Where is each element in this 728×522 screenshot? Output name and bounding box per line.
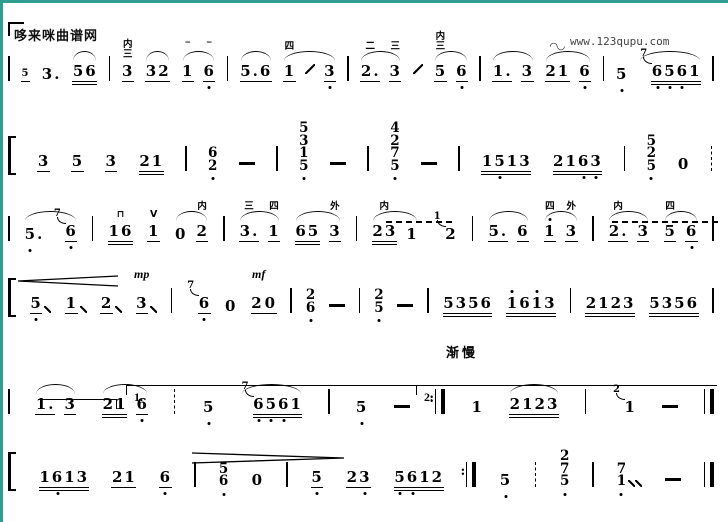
note: ‾6	[203, 63, 215, 82]
note-digits: 3	[565, 223, 577, 242]
slur	[435, 51, 467, 61]
slide-mark	[413, 64, 423, 74]
digit: .	[37, 226, 44, 242]
digit: 3	[324, 63, 336, 79]
barline	[603, 56, 605, 81]
note-digits: 3	[324, 63, 336, 82]
slur-group: 2123	[509, 396, 559, 415]
note: ⊓16	[108, 223, 133, 242]
digit: 2	[111, 469, 123, 485]
annotation-mark: 三	[244, 202, 254, 212]
note: 5	[30, 295, 51, 314]
note-digits: 5	[202, 399, 214, 415]
sheet-music-page: 哆来咪曲谱网 www.123qupu.com 渐慢 53.56内三332‾1‾6…	[0, 0, 728, 522]
note-digits: 1	[471, 399, 483, 415]
music-line-accompaniment: 353216253154275151321635250	[8, 96, 714, 172]
annotation: 三	[391, 42, 401, 52]
digit: 5	[443, 295, 455, 311]
slur-group: 四56	[664, 223, 698, 242]
note: 5	[355, 399, 367, 415]
note-digits: 21	[111, 469, 136, 488]
chord-wrap: 71	[617, 463, 642, 488]
digit: 6	[577, 153, 589, 169]
note-digits: 5	[664, 223, 676, 242]
slash-icon	[115, 306, 122, 313]
digit: 1	[531, 295, 543, 311]
digit: 6	[259, 63, 271, 79]
note: 5	[202, 399, 214, 415]
digit: 3	[384, 223, 396, 239]
digit: 2	[372, 223, 384, 239]
note: ◠◡21	[545, 63, 570, 82]
note: 3	[136, 295, 157, 314]
note-digits: 2	[196, 223, 208, 242]
annotation: 外	[567, 202, 577, 212]
note: 2123	[585, 295, 635, 314]
note-digits: 5	[30, 295, 42, 314]
barline	[712, 288, 714, 313]
digit: 2	[545, 63, 557, 79]
digit: 1	[522, 396, 534, 412]
hairpin-lines	[192, 452, 344, 464]
note-digits: 0	[175, 226, 187, 242]
barline	[171, 288, 173, 313]
note-digits: 5.	[24, 226, 44, 242]
barline	[704, 462, 714, 487]
note: 76561	[651, 63, 701, 82]
note: 76	[65, 223, 77, 242]
note: 3.	[41, 66, 61, 82]
digit: 5	[71, 153, 83, 169]
chord: 26	[306, 289, 315, 314]
digit: 1	[689, 63, 701, 79]
digit: 2	[431, 469, 443, 485]
note-digits: 6	[517, 223, 529, 242]
digit: .	[373, 63, 380, 79]
note-digits: 6	[456, 63, 468, 82]
slur	[146, 51, 169, 61]
digit: 2	[158, 63, 170, 79]
note-digits: 23	[372, 223, 397, 242]
note: 1613	[506, 295, 556, 314]
note-digits: 1613	[506, 295, 556, 314]
annotation-mark: 四	[545, 202, 555, 212]
digit: 3	[637, 223, 649, 239]
digit: 1	[124, 469, 136, 485]
note-digits: 0	[677, 156, 689, 172]
note-digits: 1613	[39, 469, 89, 488]
digit: 6	[253, 396, 265, 412]
chord: 71	[617, 463, 626, 488]
digit: 5	[72, 63, 84, 79]
note-digits: 3	[637, 223, 649, 242]
note: 5.	[488, 223, 508, 242]
digit: .	[252, 223, 259, 239]
pluck-mark	[115, 306, 122, 314]
note-digits: 1	[147, 223, 159, 242]
volta-label: 2.	[424, 391, 433, 404]
slur-group: 1.3	[492, 63, 533, 82]
digit: 0	[175, 226, 187, 242]
digit: 6	[65, 223, 77, 239]
dash-rest	[421, 162, 437, 165]
slur	[665, 211, 697, 221]
chord-digit: 6	[219, 475, 228, 488]
note-digits: 2.	[360, 63, 380, 82]
note-digits: 0	[251, 472, 263, 488]
note: 内2	[196, 223, 208, 242]
digit: 2	[610, 295, 622, 311]
annotation-mark: ⊓	[117, 210, 125, 220]
note: 6	[159, 469, 171, 488]
note-digits: 5	[311, 469, 323, 488]
volta-bracket	[38, 399, 117, 409]
barline	[427, 288, 429, 313]
note: 四1	[283, 63, 295, 82]
digit: 5	[265, 396, 277, 412]
note-digits: 3	[122, 63, 134, 82]
barline	[712, 56, 714, 81]
annotation-mark: 二	[365, 42, 375, 52]
digit: 1	[151, 153, 163, 169]
digit: 5	[307, 223, 319, 239]
digit: 0	[264, 295, 276, 311]
digit: 3	[136, 295, 148, 311]
annotation: V	[150, 210, 157, 220]
note-digits: 5	[355, 399, 367, 415]
string-dashed-line	[386, 221, 452, 223]
slur-group: 三3.四1	[239, 223, 280, 242]
note: 2123	[509, 396, 559, 415]
digit: 1	[471, 399, 483, 415]
barline	[8, 452, 16, 491]
digit: 1	[268, 223, 280, 239]
note: 1	[406, 226, 418, 242]
digit: 1	[624, 399, 636, 415]
annotation-mark: 三	[391, 42, 401, 52]
note: 内23	[372, 223, 397, 242]
digit: 6	[480, 295, 492, 311]
tempo-mark: 渐慢	[446, 342, 478, 361]
digit: 2	[553, 153, 565, 169]
digit: 3	[329, 223, 341, 239]
annotation: ‾	[207, 42, 212, 52]
note-digits: 56	[72, 63, 97, 82]
dash-rest	[665, 478, 681, 481]
barline	[359, 288, 361, 313]
slash-icon	[635, 480, 642, 487]
note: 6	[456, 63, 468, 82]
pluck-mark	[150, 306, 157, 314]
digit: 1	[598, 295, 610, 311]
note: 5	[71, 153, 83, 172]
barline	[367, 146, 369, 171]
note: 12	[445, 226, 457, 242]
note: 21	[624, 399, 636, 415]
watermark: 哆来咪曲谱网	[14, 25, 98, 44]
barline	[8, 389, 10, 414]
digit: 2	[139, 153, 151, 169]
dynamic-mark: mf	[252, 267, 265, 282]
digit: 5	[499, 472, 511, 488]
note-digits: 6	[203, 63, 215, 82]
annotation-mark: 内	[380, 202, 390, 212]
chord: 4275	[390, 122, 399, 172]
slur	[73, 51, 96, 61]
volta-label: 1.	[134, 391, 143, 404]
note-digits: 65	[295, 223, 320, 242]
digit: 3	[389, 63, 401, 79]
digit: 3	[105, 153, 117, 169]
digit: 3	[359, 469, 371, 485]
digit: 3	[145, 63, 157, 79]
digit: 6	[676, 63, 688, 79]
grace-note: 7	[54, 209, 61, 219]
chord-digit: 5	[299, 160, 308, 173]
slash-icon	[628, 480, 635, 487]
note: 外3	[565, 223, 577, 242]
annotation-mark: 三	[436, 42, 446, 52]
note-digits: 0	[224, 298, 236, 314]
digit: 6	[159, 469, 171, 485]
digit: 5	[21, 68, 30, 79]
slur	[284, 51, 335, 61]
digit: 6	[203, 63, 215, 79]
music-line-melody: 1.3216576561512123211.2.	[8, 363, 714, 415]
digit: 1	[290, 396, 302, 412]
digit: 5	[311, 469, 323, 485]
annotation: 四	[269, 202, 279, 212]
barline	[711, 146, 714, 171]
note: 四5	[664, 223, 676, 242]
digit: 6	[85, 63, 97, 79]
digit: .	[505, 63, 512, 79]
annotation: 内	[380, 202, 390, 212]
slur	[493, 51, 532, 61]
slur-group: 5.6	[240, 63, 272, 82]
digit: 3	[623, 295, 635, 311]
chord: 5315	[299, 122, 308, 172]
note: 5	[615, 66, 627, 82]
slur	[546, 51, 590, 61]
digit: 5	[355, 399, 367, 415]
volta-bracket: 1.	[126, 385, 421, 395]
note-digits: 2	[445, 226, 457, 242]
note-digits: 1	[65, 295, 77, 314]
note: 5356	[649, 295, 699, 314]
note: 四1	[544, 223, 556, 242]
digit: 6	[295, 223, 307, 239]
note-digits: 5.	[488, 223, 508, 242]
note-digits: 3.	[239, 223, 259, 242]
slide-mark	[305, 64, 315, 74]
slur-group: 四13	[283, 63, 336, 82]
string-dashed-line	[612, 221, 718, 223]
note: 外3	[329, 223, 341, 242]
note-digits: 3	[389, 63, 401, 82]
digit: 3	[590, 153, 602, 169]
slur-group: 内三56	[434, 63, 468, 82]
digit: 6	[406, 469, 418, 485]
annotation-mark: 内	[613, 202, 623, 212]
dash-rest	[239, 162, 255, 165]
note: 21	[111, 469, 136, 488]
annotation: 四	[285, 42, 295, 52]
note-digits: 1	[283, 63, 295, 82]
note: 2 0	[251, 295, 277, 314]
note-digits: 2	[100, 295, 112, 314]
digit: 1	[406, 226, 418, 242]
note: 5	[499, 472, 511, 488]
barline	[276, 146, 278, 171]
slur	[183, 51, 215, 61]
digit: 3	[521, 63, 533, 79]
barline	[466, 462, 476, 487]
annotation-mark: 内	[197, 202, 207, 212]
digit: 5	[664, 63, 676, 79]
slur-group: 0内2	[175, 223, 209, 242]
barline	[712, 216, 714, 241]
digit: 0	[224, 298, 236, 314]
digit: 6	[120, 223, 132, 239]
digit: 3	[76, 469, 88, 485]
barline	[570, 288, 572, 313]
grace-note: 7	[187, 281, 194, 291]
note-digits: 2 0	[251, 295, 277, 314]
site-url[interactable]: www.123qupu.com	[570, 35, 669, 48]
slur	[373, 211, 417, 221]
music-line-accompaniment: 16132165605235612527571	[8, 424, 714, 488]
note: 2163	[553, 153, 603, 172]
note-digits: 5	[21, 68, 30, 82]
note: 76561	[253, 396, 303, 415]
barline	[290, 288, 292, 313]
slur-group: 56	[72, 63, 97, 82]
digit: 2	[196, 223, 208, 239]
slur-group: 5.76	[24, 223, 77, 242]
digit: 3	[519, 153, 531, 169]
barline	[472, 216, 474, 241]
note: V1	[147, 223, 159, 242]
note-digits: 6	[579, 63, 591, 82]
note-digits: 2163	[553, 153, 603, 172]
note: 二2.	[360, 63, 380, 82]
slash-icon	[44, 306, 51, 313]
note-digits: 6	[159, 469, 171, 488]
note: 5356	[443, 295, 493, 314]
note: 3	[324, 63, 336, 82]
slur	[176, 211, 208, 221]
digit: 5	[30, 295, 42, 311]
note: 76	[198, 295, 210, 314]
barline	[194, 462, 196, 487]
slash-icon	[80, 306, 87, 313]
annotation: 四	[665, 202, 675, 212]
barline	[185, 146, 187, 171]
note-digits: 5.6	[240, 63, 272, 82]
annotation: 二	[365, 42, 375, 52]
note-digits: 6	[198, 295, 210, 314]
digit: 2	[360, 63, 372, 79]
digit: 6	[456, 63, 468, 79]
note: 内三5	[434, 63, 446, 82]
digit: 1	[64, 469, 76, 485]
digit: 5	[494, 153, 506, 169]
note-digits: 2.	[608, 223, 628, 242]
digit: 2	[100, 295, 112, 311]
dynamic-mark: mp	[134, 267, 149, 282]
chord: 275	[560, 450, 569, 488]
note: 3	[37, 153, 49, 172]
digit: 5	[615, 66, 627, 82]
note: 5.	[24, 226, 44, 242]
chord: 56	[219, 463, 228, 488]
annotation-mark: 四	[285, 42, 295, 52]
digit: 1	[565, 153, 577, 169]
note: 0	[175, 226, 187, 242]
note: 6	[579, 63, 591, 82]
digit: 5	[434, 63, 446, 79]
annotation: 外	[330, 202, 340, 212]
digit: 3	[239, 223, 251, 239]
note-digits: 3	[37, 153, 49, 172]
top-border	[0, 0, 728, 3]
digit: 2	[509, 396, 521, 412]
barline	[223, 216, 225, 241]
note: 6	[685, 223, 697, 242]
barline	[8, 136, 16, 175]
digit: 2	[608, 223, 620, 239]
note: 5	[311, 469, 323, 488]
slur-group: 76561	[639, 63, 701, 82]
digit: .	[621, 223, 628, 239]
annotation: 内	[613, 202, 623, 212]
annotation: 内	[197, 202, 207, 212]
digit: 1	[506, 295, 518, 311]
chord: 525	[647, 135, 656, 173]
note: 3	[521, 63, 533, 82]
barline	[8, 278, 16, 317]
dash-rest	[397, 304, 413, 307]
note-digits: 23	[346, 469, 371, 488]
digit: 6	[51, 469, 63, 485]
slur-group: 76561	[241, 396, 303, 415]
slur	[36, 384, 75, 394]
digit: 6	[517, 223, 529, 239]
barline	[8, 216, 10, 241]
slur-group: 5.6	[488, 223, 529, 242]
note-digits: 6561	[651, 63, 701, 82]
note: 5	[21, 68, 30, 82]
note: 0	[677, 156, 689, 172]
note: 56	[72, 63, 97, 82]
note-digits: 2123	[585, 295, 635, 314]
note: 1613	[39, 469, 89, 488]
chord-digit: 6	[306, 302, 315, 315]
note: 1513	[481, 153, 531, 172]
note: 2	[100, 295, 121, 314]
note-digits: 3.	[41, 66, 61, 82]
barline	[356, 216, 358, 241]
digit: 6	[685, 223, 697, 239]
digit: 6	[198, 295, 210, 311]
chord-digit: 5	[647, 160, 656, 173]
annotation: ‾	[185, 42, 190, 52]
note: 65	[295, 223, 320, 242]
note-digits: 21	[139, 153, 164, 172]
digit: 2	[585, 295, 597, 311]
note: 内2.	[608, 223, 628, 242]
